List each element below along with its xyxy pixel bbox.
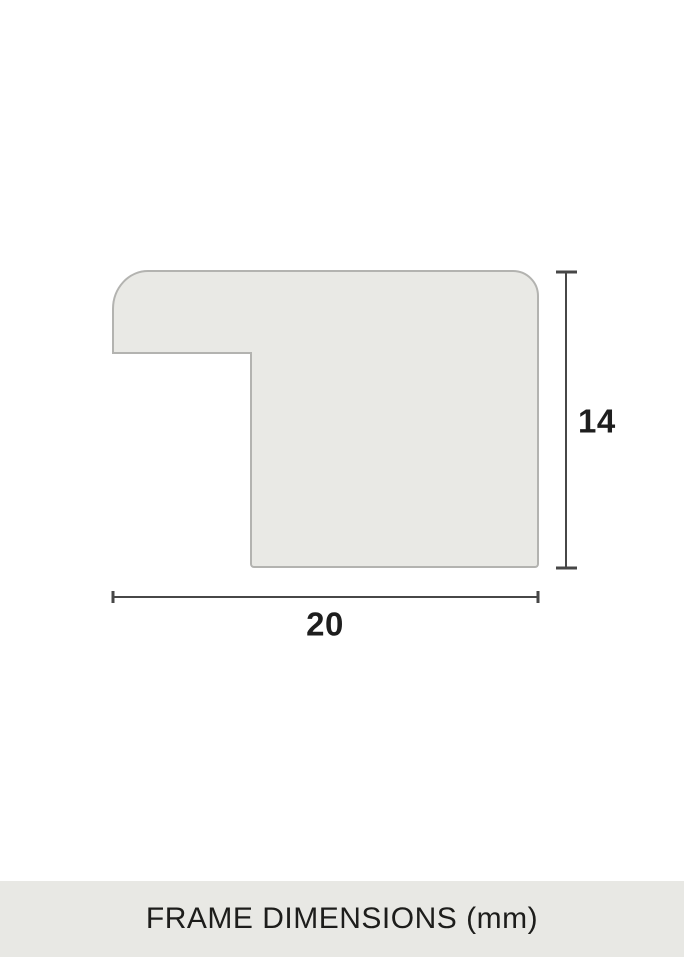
height-dimension-label: 14	[578, 405, 616, 438]
height-dimension-line	[556, 272, 577, 568]
caption-bar: FRAME DIMENSIONS (mm)	[0, 881, 684, 957]
width-dimension-label: 20	[306, 608, 344, 641]
frame-profile-drawing	[0, 0, 684, 880]
width-dimension-line	[113, 591, 538, 603]
caption-text: FRAME DIMENSIONS (mm)	[146, 902, 538, 936]
frame-profile-shape	[113, 271, 538, 567]
diagram-canvas: 14 20 FRAME DIMENSIONS (mm)	[0, 0, 684, 957]
